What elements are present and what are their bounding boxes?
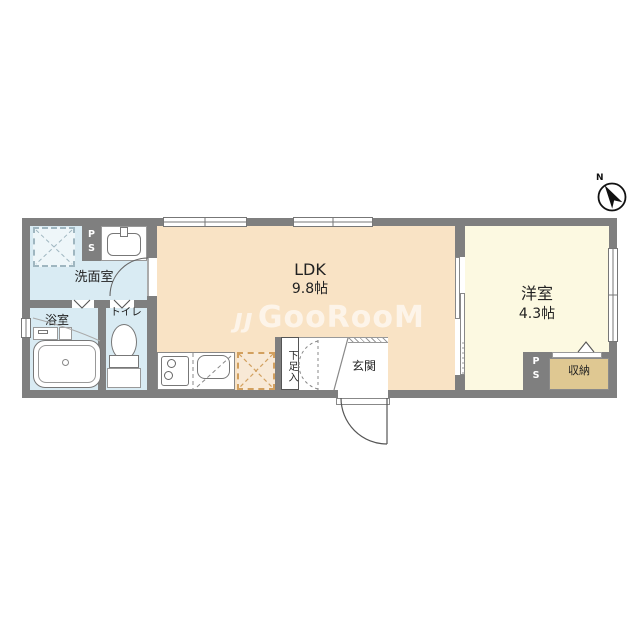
washer-pan-icon xyxy=(33,227,75,267)
fridge-space xyxy=(237,352,275,390)
ps-top-p: P xyxy=(82,228,101,242)
ps-label-top: P S xyxy=(82,228,101,257)
washroom-label: 洗面室 xyxy=(58,271,130,286)
window-bath xyxy=(21,318,31,338)
western-room-area-label: 4.3帖 xyxy=(497,306,577,322)
wall-bottom xyxy=(22,390,617,398)
entrance-label: 玄関 xyxy=(342,360,386,374)
window-right xyxy=(608,248,618,342)
ldk-label: LDK xyxy=(270,261,350,279)
bathroom-label: 浴室 xyxy=(33,314,81,328)
entrance-threshold xyxy=(336,398,390,405)
entrance-hatch-strip xyxy=(348,337,388,343)
ldk-area-label: 9.8帖 xyxy=(270,281,350,297)
stove-burner-2 xyxy=(164,371,173,380)
watermark: ȷȷGooRooM xyxy=(234,300,425,335)
window-top-1 xyxy=(163,217,247,227)
window-top-2 xyxy=(293,217,373,227)
ps-top-s: S xyxy=(82,242,101,256)
bath-stool xyxy=(59,327,72,340)
sliding-door-panel-2 xyxy=(460,293,465,375)
wall-washroom-ldk xyxy=(147,226,157,390)
floorplan-canvas: 洗面室 浴室 トイレ LDK 9.8帖 洋室 4.3帖 玄関 収納 下足入 P … xyxy=(0,0,640,640)
toilet-base xyxy=(107,368,141,388)
wall-left xyxy=(22,218,30,398)
compass-north-label: N xyxy=(596,173,604,183)
washroom-door-opening xyxy=(147,258,157,296)
watermark-text: GooRooM xyxy=(258,300,425,335)
watermark-logo: ȷȷ xyxy=(234,304,254,334)
ps-label-bottom: P S xyxy=(523,355,549,384)
toilet-label: トイレ xyxy=(104,306,148,318)
storage-label-front: 収納 xyxy=(549,365,609,378)
bathroom-door-opening xyxy=(72,300,94,308)
shoe-cabinet-label: 下足入 xyxy=(283,342,297,390)
bath-tap-icon xyxy=(38,330,48,334)
ps-bottom-p: P xyxy=(523,355,549,369)
entrance-door-opening xyxy=(338,390,388,398)
ps-bottom-s: S xyxy=(523,369,549,383)
stove-burner-1 xyxy=(167,359,176,368)
compass-icon: N xyxy=(586,168,638,222)
western-room-label: 洋室 xyxy=(497,285,577,303)
bathtub-drain-icon xyxy=(62,359,69,366)
toilet-tank-icon xyxy=(109,355,139,368)
kitchen-sink-icon xyxy=(197,355,230,379)
washbasin-tap-icon xyxy=(120,227,128,237)
